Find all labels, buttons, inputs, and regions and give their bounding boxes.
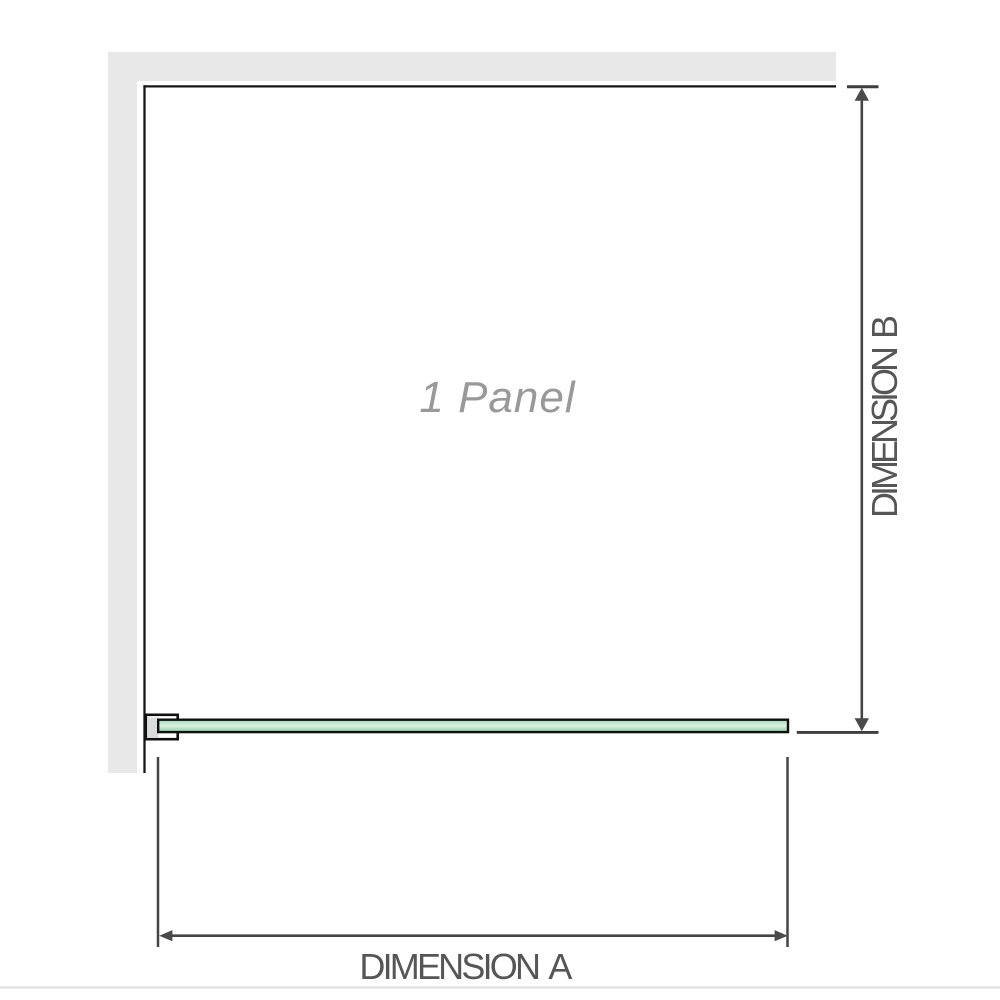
svg-text:DIMENSION A: DIMENSION A xyxy=(359,946,572,987)
svg-text:DIMENSION B: DIMENSION B xyxy=(864,316,905,518)
svg-text:1 Panel: 1 Panel xyxy=(419,373,575,422)
